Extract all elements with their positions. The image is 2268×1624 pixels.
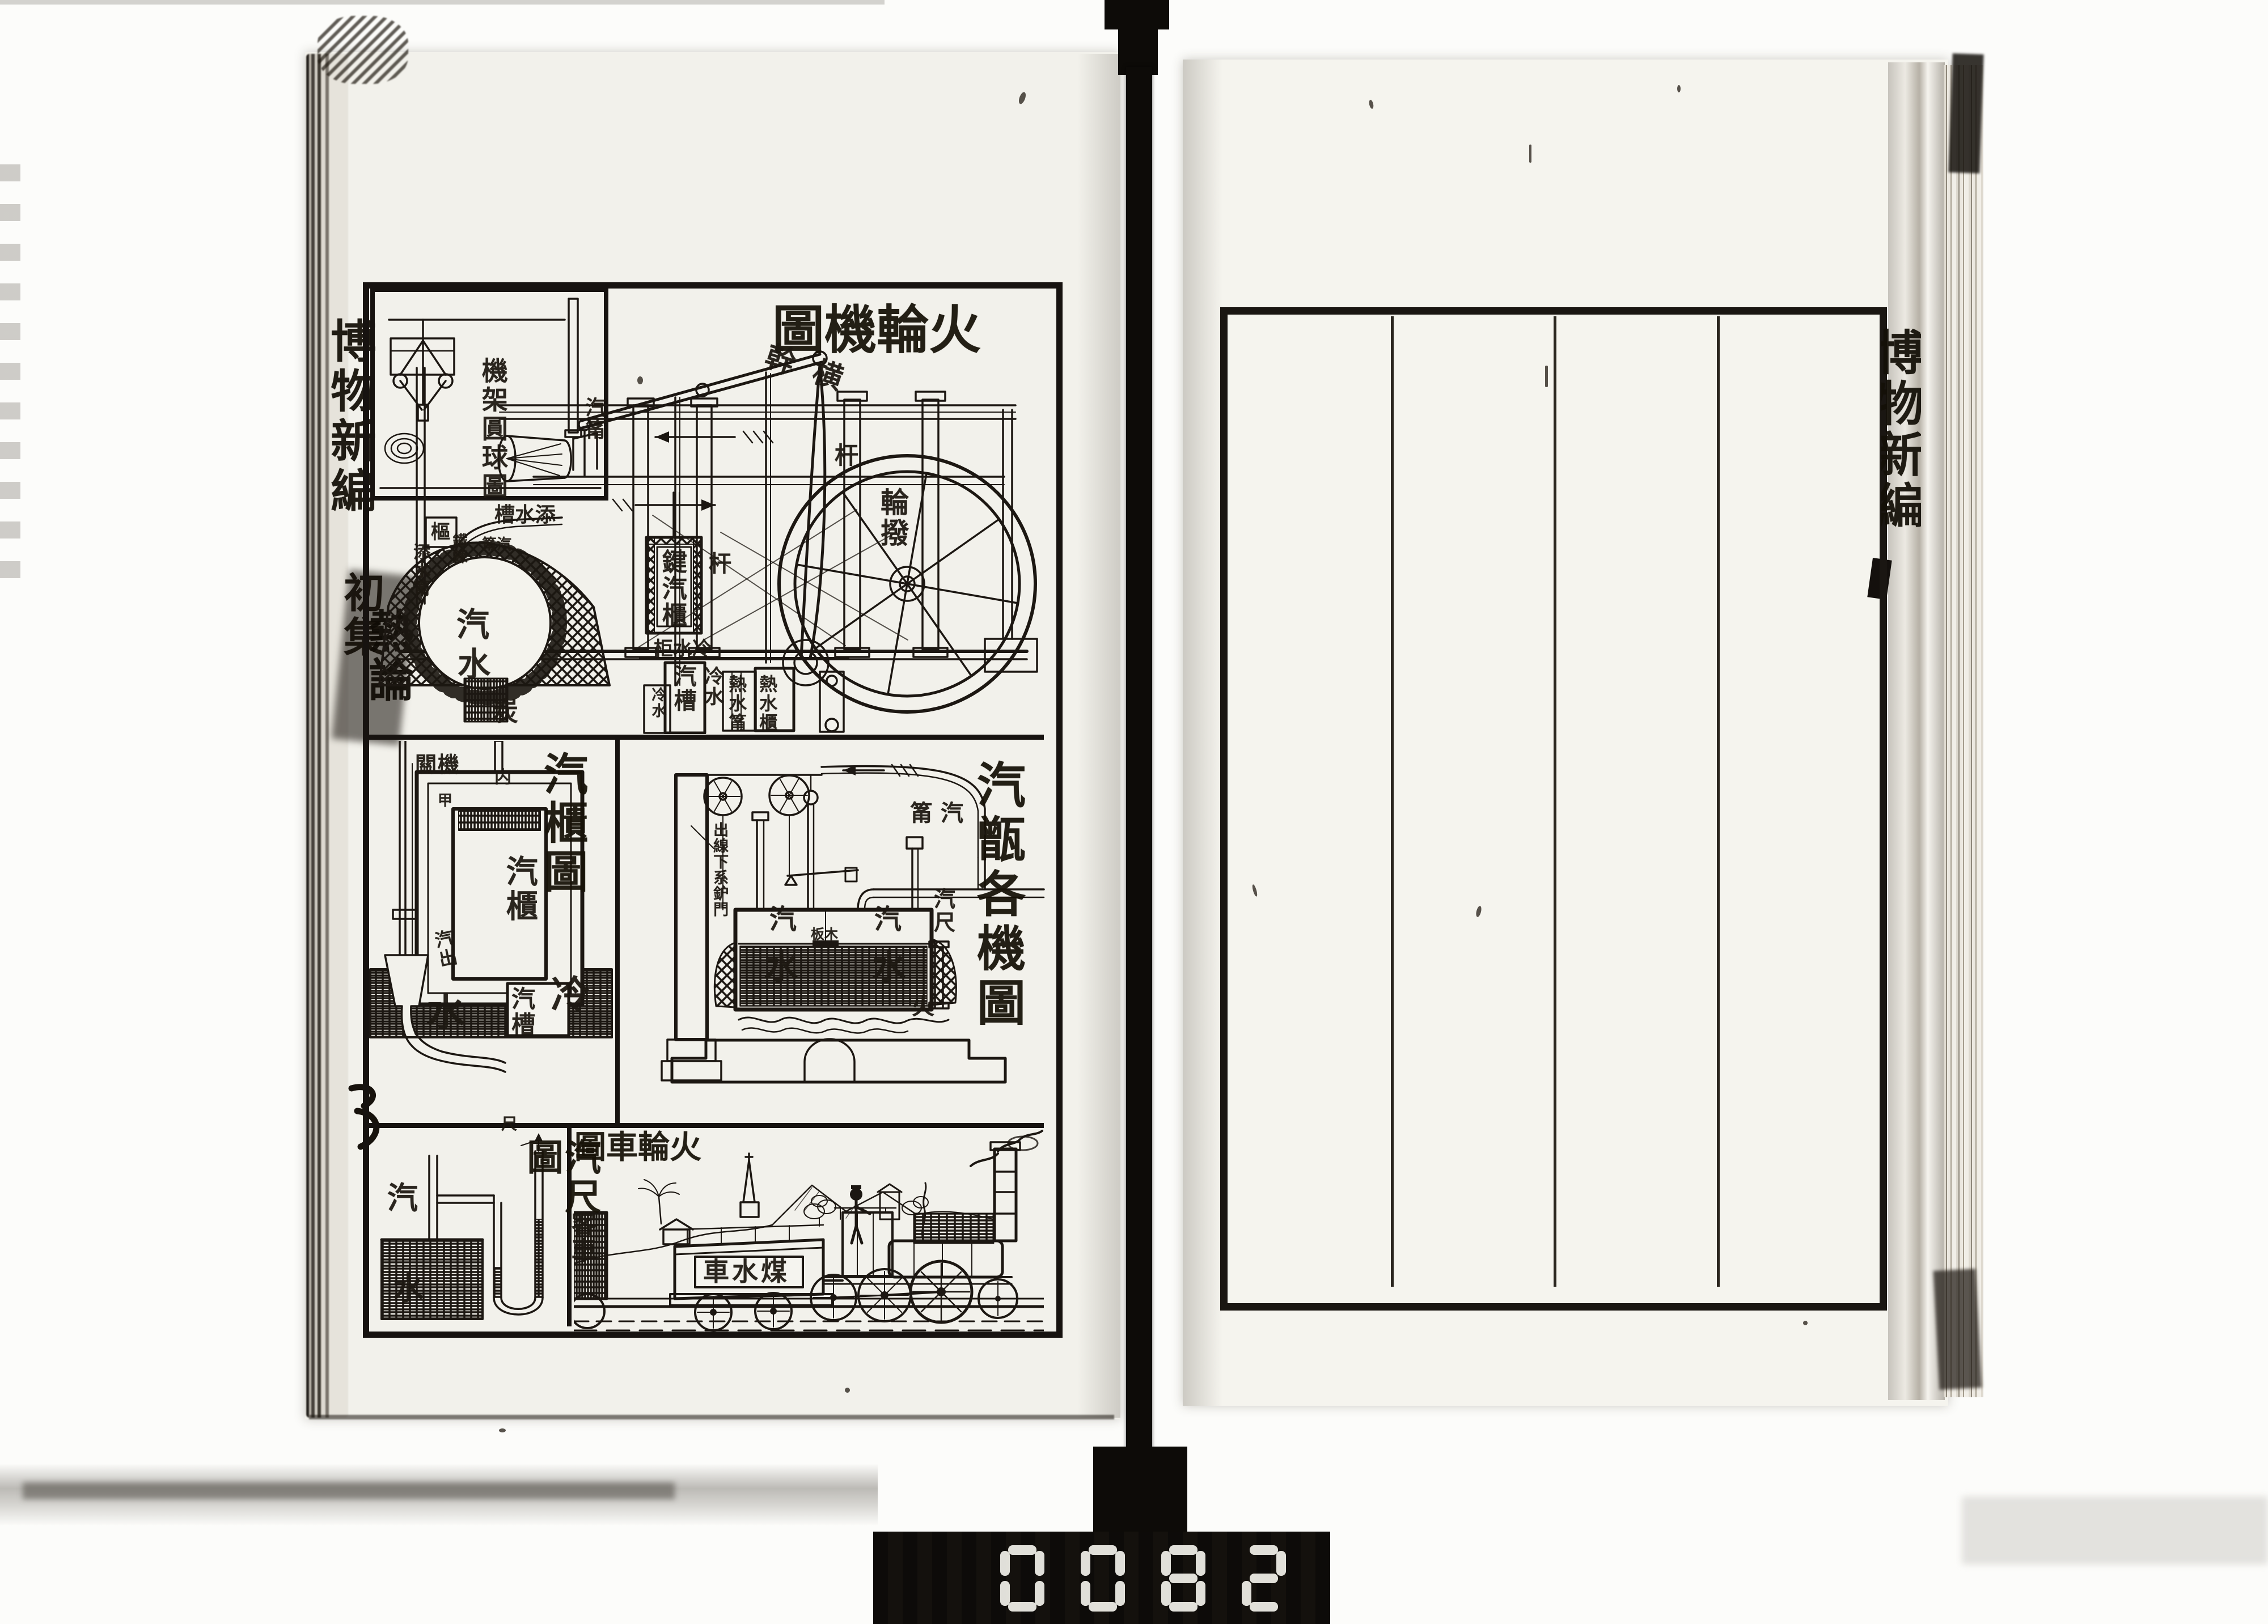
locomotive-title: 火輪車圖 <box>596 1131 701 1164</box>
boiler-water-left-label: 水 <box>764 950 798 985</box>
gauge-steam-label: 汽 <box>387 1182 418 1214</box>
ink-speck <box>499 1428 506 1432</box>
boiler-water-label: 水 <box>458 647 490 681</box>
boiler-steam-left-label: 汽 <box>769 906 797 934</box>
scan-streaks-left <box>0 147 20 578</box>
boiler-steam-pipe-label: 汽筩 <box>910 802 963 826</box>
ink-speck <box>1545 366 1548 387</box>
hot-water-pipe-label: 熱水筩 <box>727 675 746 736</box>
inset-caption: 機架圓球圖 <box>479 357 506 510</box>
ink-speck <box>1803 1321 1808 1325</box>
right-margin-series-title: 博物新編 <box>1881 328 1921 566</box>
furnace-door-label: 出線下系鈩門 <box>711 822 727 917</box>
steam-chest-label: 汽櫃 <box>502 855 535 928</box>
gauge-water-label: 水 <box>393 1273 424 1305</box>
counter-digit <box>1080 1544 1126 1613</box>
right-page-edge-stack <box>1944 65 1983 1397</box>
plate-hline-2 <box>369 1123 1044 1128</box>
left-page-gutter-shade <box>1077 54 1120 1418</box>
valve-chest-label: 鍵汽櫃 <box>659 549 685 634</box>
gutter-pedestal <box>1093 1447 1187 1536</box>
feed-trough-label: 添水槽 <box>498 504 556 525</box>
left-page-corner-smudge <box>318 16 408 84</box>
valve-marker-label: 甲 <box>438 794 452 809</box>
steam-trough-label: 汽槽 <box>671 664 695 716</box>
boiler-steam-label: 汽 <box>456 608 489 642</box>
rod-label-a: 杆 <box>835 443 858 468</box>
cold-water-box-label: 冷水柜 <box>655 639 712 659</box>
tender-label: 煤水車 <box>703 1258 787 1286</box>
right-page-gutter-shade <box>1183 60 1222 1406</box>
rod-label-b: 杆 <box>709 553 731 576</box>
left-page-bottom-shadow <box>309 1415 1114 1419</box>
engine-title: 火輪機圖 <box>791 303 981 358</box>
counter-digit <box>1241 1544 1287 1613</box>
coal-label: 炭 <box>492 698 518 726</box>
right-edge-blotch-bottom <box>1933 1269 1982 1390</box>
right-page-fold <box>1888 62 1945 1400</box>
scan-smudge-bottom-core <box>23 1482 675 1499</box>
ink-speck <box>637 376 643 384</box>
valve-water-label: 水 <box>426 993 465 1033</box>
passenger-car-label: 客車 <box>568 1211 594 1272</box>
valve-cold-label: 冷 <box>551 976 590 1016</box>
counter-digit <box>999 1544 1046 1613</box>
right-page-column-line-3 <box>1717 316 1720 1287</box>
hot-water-tank-label: 熱水櫃 <box>758 675 776 736</box>
ink-speck <box>1529 145 1531 163</box>
plate-hline-1 <box>369 735 1044 740</box>
scan-smudge-bottom-right <box>1962 1496 2268 1564</box>
float-board-label: 木板 <box>811 927 838 942</box>
boiler-title: 汽甑各機圖 <box>971 760 1021 1068</box>
feed-pipe-label: 添水筩 <box>411 543 429 599</box>
right-page-column-line-1 <box>1391 316 1394 1287</box>
ink-speck <box>845 1388 850 1393</box>
frame-counter-digits <box>999 1544 1287 1613</box>
right-edge-blotch-top <box>1948 53 1983 173</box>
pivot-label: 樞 <box>431 523 450 542</box>
ink-speck <box>1677 85 1681 92</box>
right-page-column-line-2 <box>1554 316 1556 1287</box>
cold-water-label: 冷水 <box>702 666 722 710</box>
valve-rod-label: 内 <box>494 769 511 786</box>
valve-title: 汽櫃圖 <box>539 751 585 901</box>
valve-steam-trough-label: 汽槽 <box>509 986 534 1041</box>
valve-gear-label: 機關 <box>415 754 459 777</box>
boiler-steam-right-label: 汽 <box>874 906 902 934</box>
crank-label: 輪撥 <box>878 487 907 556</box>
gutter-bar <box>1126 67 1152 1453</box>
scanned-book-spread: 博物新編 博物新編 初集 熱論 <box>0 0 2268 1624</box>
cold-water-small-label: 冷水 <box>650 687 665 722</box>
counter-digit <box>1160 1544 1207 1613</box>
scan-smudge-top <box>0 0 885 5</box>
boiler-gauge-label: 汽尺 <box>931 888 954 938</box>
inset-steam-pipe-label: 汽筩 <box>583 397 604 448</box>
steam-pipe-label: 汽筩 <box>482 537 511 553</box>
boiler-water-right-label: 水 <box>872 950 906 985</box>
chain-label: 鐵鍊 <box>451 533 466 567</box>
boiler-fire-label: 火 <box>912 995 934 1019</box>
gauge-ruler-label: 尺 <box>501 1116 517 1132</box>
